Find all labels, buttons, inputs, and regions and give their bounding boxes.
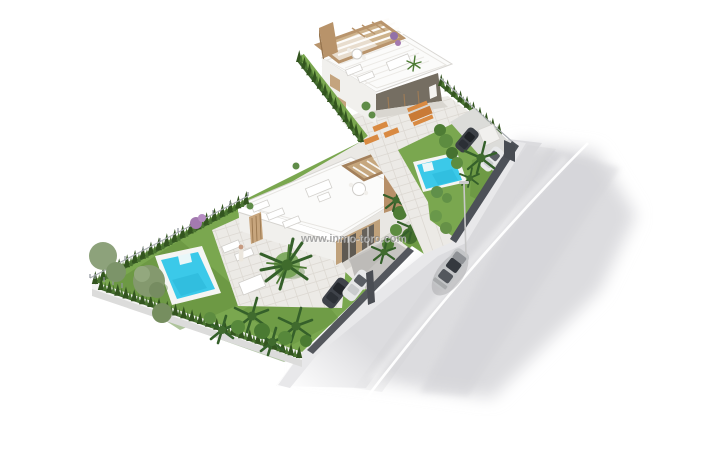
svg-text:www.inmo-toro.com: www.inmo-toro.com	[300, 233, 407, 245]
